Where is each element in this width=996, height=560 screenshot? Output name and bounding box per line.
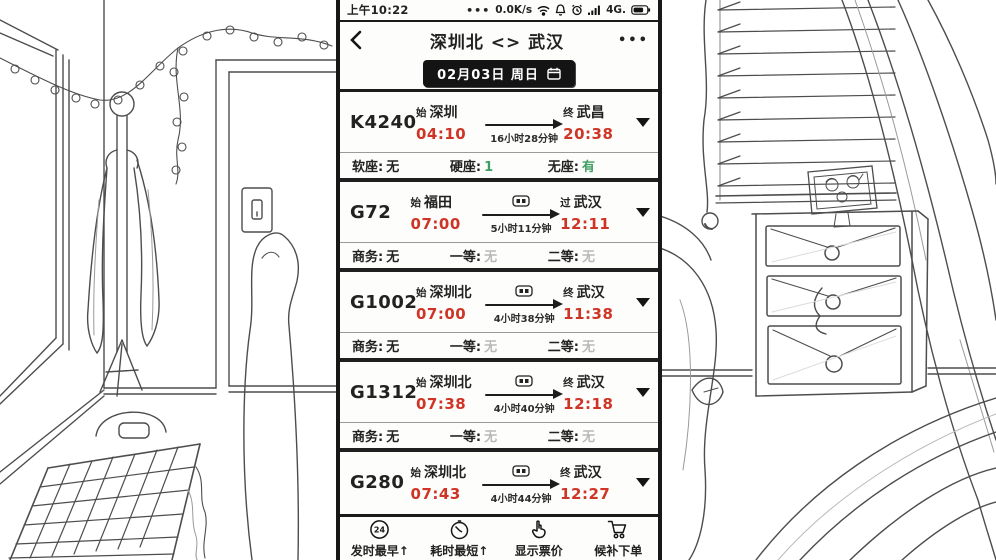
sort-earliest-label: 发时最早↑ bbox=[351, 542, 409, 559]
dresser-sketch bbox=[752, 211, 928, 396]
chevron-down-icon bbox=[636, 208, 650, 217]
24h-clock-icon: 24 bbox=[369, 519, 390, 540]
photo-frame-sketch bbox=[808, 166, 877, 227]
baseboard-sketch-right bbox=[660, 368, 996, 376]
table-sketch bbox=[9, 444, 206, 560]
train-list: K4240 始深圳 04:10 16小时28分钟 终武昌 20:38 bbox=[340, 92, 658, 514]
arrival-time: 12:11 bbox=[560, 215, 632, 233]
train-service-badge-icon bbox=[515, 285, 533, 297]
network-speed: 0.0K/s bbox=[495, 4, 532, 16]
train-row-g72[interactable]: G72 始福田 07:00 5小时11分钟 过武汉 12:11 bbox=[340, 182, 658, 272]
train-code: G280 bbox=[350, 472, 411, 493]
seat-label: 一等: bbox=[450, 430, 481, 445]
route-arrow bbox=[485, 388, 563, 398]
sort-shortest-duration-button[interactable]: 耗时最短↑ bbox=[420, 519, 500, 559]
back-button[interactable] bbox=[350, 30, 376, 50]
origin-prefix: 始 bbox=[411, 467, 422, 479]
expand-button[interactable] bbox=[632, 208, 650, 217]
destination-prefix: 终 bbox=[563, 107, 574, 119]
room-sketch-left bbox=[0, 0, 338, 560]
light-switch-sketch bbox=[242, 188, 272, 232]
destination-station: 武汉 bbox=[574, 465, 602, 481]
destination-station: 武汉 bbox=[577, 375, 605, 391]
seat-value: 1 bbox=[484, 160, 493, 175]
seat-label: 商务: bbox=[352, 430, 383, 445]
expand-button[interactable] bbox=[632, 478, 650, 487]
seat-availability: 商务:无 一等:无 二等:无 bbox=[340, 332, 658, 358]
cart-icon bbox=[607, 519, 629, 540]
seat-label: 一等: bbox=[450, 340, 481, 355]
fairy-lights-sketch bbox=[0, 26, 332, 184]
plant-sketch bbox=[660, 216, 723, 560]
destination-prefix: 终 bbox=[563, 287, 574, 299]
chevron-down-icon bbox=[636, 388, 650, 397]
seat-availability: 商务:无 一等:无 二等:无 bbox=[340, 422, 658, 448]
train-code: G1002 bbox=[350, 292, 416, 313]
destination-station: 武汉 bbox=[577, 285, 605, 301]
curtain-sketch bbox=[814, 0, 996, 560]
page: 上午10:22 ••• 0.0K/s 4G. bbox=[0, 0, 996, 560]
waitlist-order-label: 候补下单 bbox=[594, 542, 642, 559]
train-service-badge-icon bbox=[512, 465, 530, 477]
route-arrow bbox=[482, 478, 560, 488]
duration-text: 5小时11分钟 bbox=[491, 220, 552, 235]
chevron-down-icon bbox=[636, 118, 650, 127]
departure-time: 07:00 bbox=[411, 215, 483, 233]
seat-label: 二等: bbox=[548, 430, 579, 445]
alarm-clock-icon bbox=[571, 4, 583, 16]
blind-cord-sketch bbox=[702, 0, 718, 229]
more-options-button[interactable]: ••• bbox=[618, 33, 648, 48]
arrival-time: 12:27 bbox=[560, 485, 632, 503]
origin-station: 深圳北 bbox=[430, 285, 472, 301]
date-selector[interactable]: 02月03日 周日 bbox=[423, 60, 575, 87]
seat-label: 一等: bbox=[450, 250, 481, 265]
seat-value: 有 bbox=[582, 160, 595, 175]
departure-time: 07:38 bbox=[416, 395, 485, 413]
seat-label: 二等: bbox=[548, 340, 579, 355]
seat-label: 无座: bbox=[548, 160, 579, 175]
destination-prefix: 终 bbox=[560, 467, 571, 479]
window-frame-sketch bbox=[0, 20, 69, 404]
route-arrow bbox=[485, 118, 563, 128]
sort-earliest-departure-button[interactable]: 24 发时最早↑ bbox=[340, 519, 420, 559]
destination-station: 武昌 bbox=[577, 105, 605, 121]
origin-prefix: 始 bbox=[411, 197, 422, 209]
train-code: G1312 bbox=[350, 382, 416, 403]
seat-value: 无 bbox=[386, 250, 399, 265]
train-code: K4240 bbox=[350, 112, 416, 133]
signal-bars-icon bbox=[588, 5, 601, 15]
seat-value: 无 bbox=[582, 250, 595, 265]
route-arrow bbox=[482, 208, 560, 218]
arm-sketch bbox=[244, 233, 298, 560]
svg-text:24: 24 bbox=[374, 525, 386, 534]
seat-value: 无 bbox=[386, 340, 399, 355]
status-time: 上午10:22 bbox=[347, 2, 409, 18]
duration-text: 16小时28分钟 bbox=[490, 130, 558, 145]
network-type: 4G. bbox=[606, 4, 626, 16]
seat-value: 无 bbox=[582, 430, 595, 445]
coat-rack-sketch bbox=[88, 92, 159, 396]
origin-station: 深圳 bbox=[430, 105, 458, 121]
origin-prefix: 始 bbox=[416, 287, 427, 299]
train-row-g1312[interactable]: G1312 始深圳北 07:38 4小时40分钟 终武汉 12:18 bbox=[340, 362, 658, 452]
train-row-k4240[interactable]: K4240 始深圳 04:10 16小时28分钟 终武昌 20:38 bbox=[340, 92, 658, 182]
bed-sketch bbox=[756, 398, 996, 560]
hand-tap-icon bbox=[528, 519, 549, 540]
status-bar: 上午10:22 ••• 0.0K/s 4G. bbox=[340, 0, 658, 22]
wifi-icon bbox=[537, 5, 550, 16]
departure-time: 07:00 bbox=[416, 305, 485, 323]
date-text: 02月03日 周日 bbox=[437, 64, 539, 83]
arrival-time: 20:38 bbox=[563, 125, 632, 143]
seat-label: 软座: bbox=[352, 160, 383, 175]
duration-text: 4小时40分钟 bbox=[494, 400, 555, 415]
seat-availability: 软座:无 硬座:1 无座:有 bbox=[340, 152, 658, 178]
door-frame-sketch bbox=[216, 60, 338, 388]
train-row-g280[interactable]: G280 始深圳北 07:43 4小时44分钟 终武汉 12:27 bbox=[340, 452, 658, 514]
expand-button[interactable] bbox=[632, 298, 650, 307]
duration-text: 4小时38分钟 bbox=[494, 310, 555, 325]
bell-icon bbox=[555, 4, 566, 16]
origin-station: 深圳北 bbox=[430, 375, 472, 391]
train-service-badge-icon bbox=[515, 375, 533, 387]
calendar-icon bbox=[547, 67, 561, 80]
destination-prefix: 过 bbox=[560, 197, 571, 209]
train-row-g1002[interactable]: G1002 始深圳北 07:00 4小时38分钟 终武汉 11:38 bbox=[340, 272, 658, 362]
origin-station: 福田 bbox=[424, 195, 452, 211]
seat-value: 无 bbox=[386, 160, 399, 175]
seat-value: 无 bbox=[582, 340, 595, 355]
baseboard-sketch bbox=[0, 386, 338, 484]
app-header: 深圳北 <> 武汉 ••• bbox=[340, 22, 658, 58]
expand-button[interactable] bbox=[632, 388, 650, 397]
chair-sketch bbox=[96, 412, 166, 438]
notification-dots: ••• bbox=[466, 4, 490, 17]
stopwatch-icon bbox=[449, 519, 470, 540]
chevron-down-icon bbox=[636, 298, 650, 307]
destination-station: 武汉 bbox=[574, 195, 602, 211]
train-code: G72 bbox=[350, 202, 411, 223]
destination-prefix: 终 bbox=[563, 377, 574, 389]
arrival-time: 11:38 bbox=[563, 305, 632, 323]
sort-duration-label: 耗时最短↑ bbox=[430, 542, 488, 559]
seat-value: 无 bbox=[484, 250, 497, 265]
seat-availability: 商务:无 一等:无 二等:无 bbox=[340, 242, 658, 268]
waitlist-order-button[interactable]: 候补下单 bbox=[579, 519, 659, 559]
seat-label: 商务: bbox=[352, 340, 383, 355]
origin-station: 深圳北 bbox=[424, 465, 466, 481]
seat-value: 无 bbox=[484, 340, 497, 355]
room-sketch-right bbox=[660, 0, 996, 560]
bottom-toolbar: 24 发时最早↑ 耗时最短↑ 显示票价 bbox=[340, 514, 658, 560]
expand-button[interactable] bbox=[632, 118, 650, 127]
seat-label: 商务: bbox=[352, 250, 383, 265]
departure-time: 07:43 bbox=[411, 485, 483, 503]
route-title: 深圳北 <> 武汉 bbox=[376, 28, 618, 53]
chevron-down-icon bbox=[636, 478, 650, 487]
date-bar: 02月03日 周日 bbox=[340, 58, 658, 92]
show-prices-label: 显示票价 bbox=[515, 542, 563, 559]
duration-text: 4小时44分钟 bbox=[491, 490, 552, 505]
show-prices-button[interactable]: 显示票价 bbox=[499, 519, 579, 559]
seat-label: 硬座: bbox=[450, 160, 481, 175]
phone-screen: 上午10:22 ••• 0.0K/s 4G. bbox=[336, 0, 662, 560]
seat-value: 无 bbox=[386, 430, 399, 445]
back-chevron-icon bbox=[350, 30, 362, 50]
arrival-time: 12:18 bbox=[563, 395, 632, 413]
seat-value: 无 bbox=[484, 430, 497, 445]
departure-time: 04:10 bbox=[416, 125, 485, 143]
window-blinds-sketch bbox=[716, 0, 896, 203]
origin-prefix: 始 bbox=[416, 107, 427, 119]
battery-icon bbox=[631, 5, 651, 15]
origin-prefix: 始 bbox=[416, 377, 427, 389]
route-arrow bbox=[485, 298, 563, 308]
seat-label: 二等: bbox=[548, 250, 579, 265]
train-service-badge-icon bbox=[512, 195, 530, 207]
